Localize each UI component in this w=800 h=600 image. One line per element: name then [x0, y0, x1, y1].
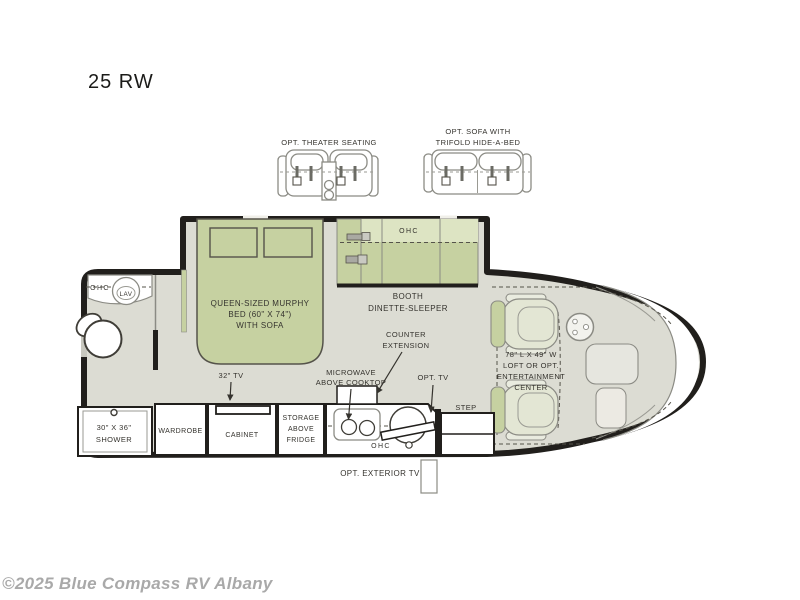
cabinet-label: CABINET: [225, 432, 258, 439]
counter-extension-label: EXTENSION: [383, 341, 430, 350]
faucet: [406, 442, 412, 448]
seat-belt: [346, 255, 367, 264]
loft-label: CENTER: [514, 383, 547, 392]
dinette-ohc-label: OHC: [399, 228, 419, 235]
wardrobe-label: WARDROBE: [158, 428, 202, 435]
storage-fridge-label: STORAGE: [283, 415, 320, 422]
watermark: ©2025 Blue Compass RV Albany: [2, 574, 274, 593]
theater-seating-option: [278, 150, 378, 200]
murphy-bed-label: WITH SOFA: [236, 321, 284, 330]
slide-wall-accent: [182, 270, 187, 332]
seat-belt: [347, 233, 370, 241]
loft-label: ENTERTAINMENT: [497, 372, 565, 381]
opt-exterior-tv-label: OPT. EXTERIOR TV: [340, 469, 420, 478]
murphy-bed-label: BED (60" X 74"): [228, 310, 291, 319]
microwave-label: MICROWAVE: [326, 368, 376, 377]
pillow-right: [264, 228, 312, 257]
booth-dinette-label: BOOTH: [393, 292, 423, 301]
floorplan-canvas: 25 RW OPT. THEATER SEATING OPT. SOFA WIT…: [0, 0, 800, 600]
bath-ohc-label: OHC: [90, 285, 110, 292]
loft-label: 78" L X 49" W: [505, 350, 557, 359]
loft-label: LOFT OR OPT.: [503, 361, 559, 370]
shower-label: SHOWER: [96, 435, 132, 444]
entry-door: [421, 460, 437, 493]
sofa-option-label: OPT. SOFA WITH: [445, 127, 510, 136]
pillow-left: [210, 228, 257, 257]
driver-seat: [491, 294, 558, 354]
opt-tv-label: OPT. TV: [417, 373, 448, 382]
murphy-bed-label: QUEEN-SIZED MURPHY: [211, 299, 310, 308]
storage-fridge-label: FRIDGE: [287, 437, 316, 444]
shower-label: 30" X 36": [97, 423, 132, 432]
kitchen-ohc-label: OHC: [371, 443, 391, 450]
storage-fridge-label: ABOVE: [288, 426, 314, 433]
center-console: [596, 388, 626, 428]
booth-dinette-label: DINETTE-SLEEPER: [368, 304, 448, 313]
step-label: STEP: [455, 403, 476, 412]
counter-extension-label: COUNTER: [386, 330, 426, 339]
cooktop: [334, 409, 380, 440]
floorplan-page: 25 RW OPT. THEATER SEATING OPT. SOFA WIT…: [0, 0, 800, 600]
theater-seating-label: OPT. THEATER SEATING: [281, 138, 377, 147]
dash-console: [586, 344, 638, 384]
step-box: [441, 413, 494, 455]
sofa-option: [424, 150, 531, 194]
tv32-label: 32" TV: [219, 371, 244, 380]
steering-wheel-icon: [567, 314, 594, 341]
murphy-bed: [197, 219, 323, 364]
microwave-label: ABOVE COOKTOP: [316, 378, 387, 387]
tv-32: [216, 406, 270, 414]
lav-label: LAV: [120, 291, 133, 298]
counter-extension-box: [337, 386, 377, 404]
bath-pocket-door: [153, 330, 158, 370]
sofa-option-label: TRIFOLD HIDE-A-BED: [436, 138, 521, 147]
page-title: 25 RW: [88, 71, 154, 93]
